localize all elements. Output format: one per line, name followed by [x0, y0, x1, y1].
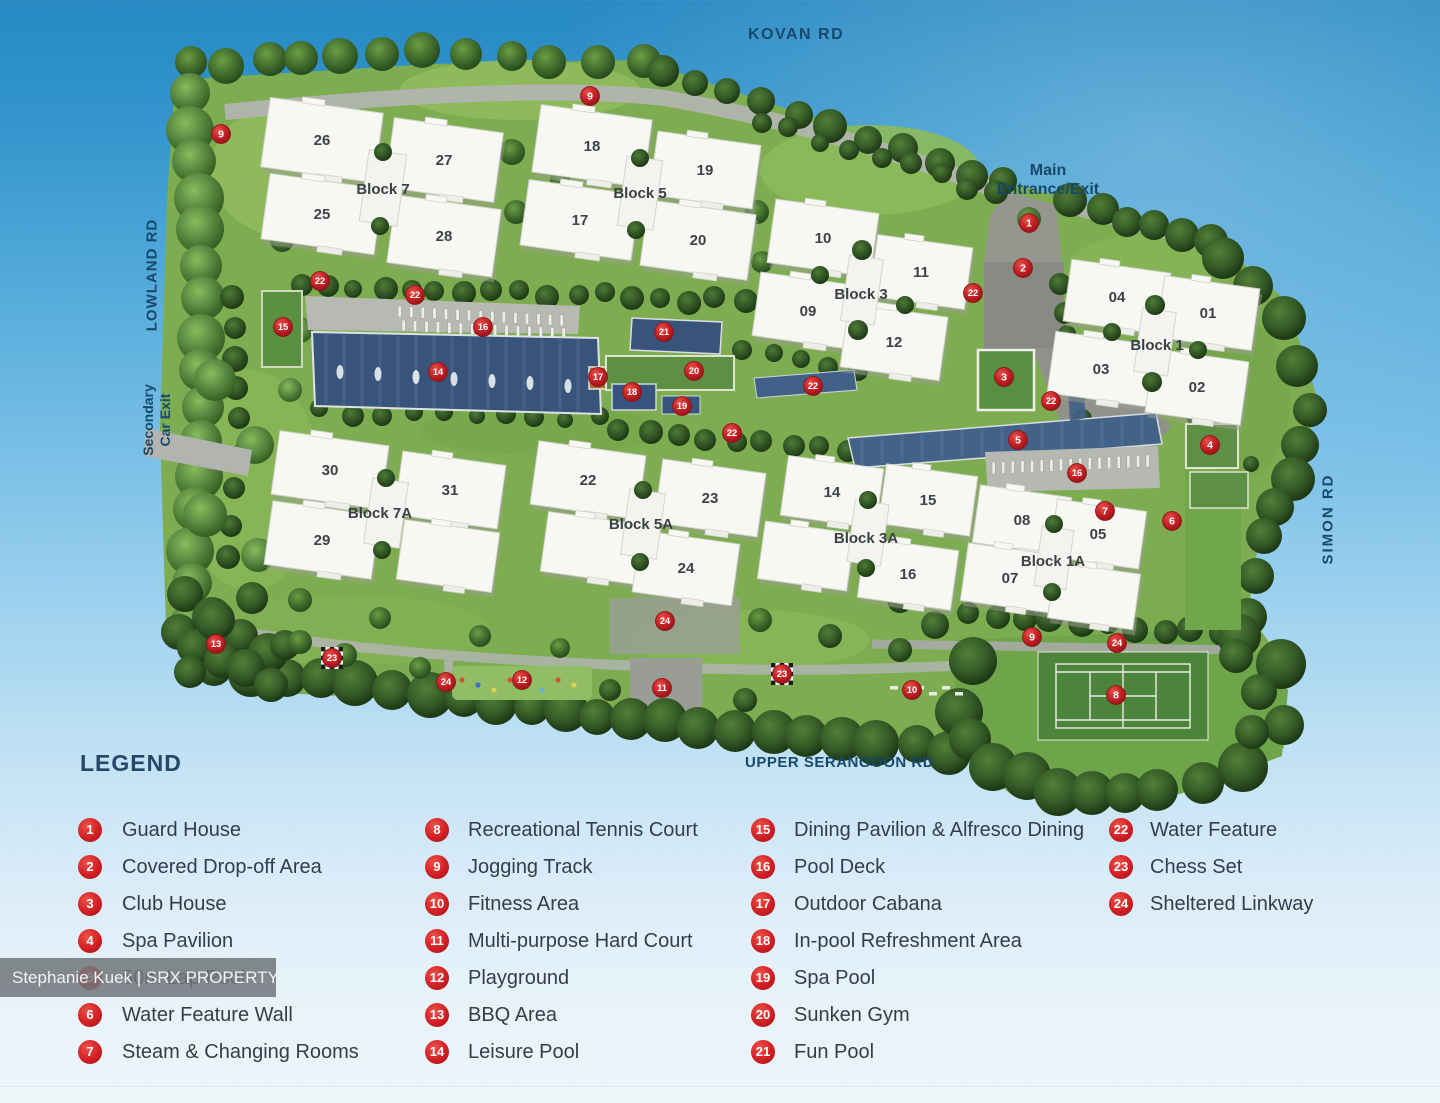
svg-text:20: 20 — [690, 232, 707, 249]
svg-text:14: 14 — [433, 367, 444, 377]
svg-text:29: 29 — [314, 532, 331, 549]
svg-text:16: 16 — [1072, 468, 1082, 478]
svg-text:18: 18 — [584, 138, 601, 155]
svg-text:12: 12 — [886, 334, 903, 351]
svg-text:04: 04 — [1109, 289, 1126, 306]
svg-text:Block 5: Block 5 — [613, 185, 666, 202]
svg-text:15: 15 — [278, 322, 288, 332]
svg-text:27: 27 — [436, 152, 453, 169]
svg-text:23: 23 — [327, 653, 337, 663]
svg-text:7: 7 — [1102, 505, 1108, 517]
svg-text:10: 10 — [907, 685, 917, 695]
svg-text:6: 6 — [1169, 515, 1175, 527]
svg-text:01: 01 — [1200, 305, 1217, 322]
svg-text:22: 22 — [580, 472, 597, 489]
svg-text:19: 19 — [697, 162, 714, 179]
svg-text:22: 22 — [1046, 396, 1056, 406]
svg-text:Block 3A: Block 3A — [834, 530, 898, 547]
svg-text:5: 5 — [1015, 434, 1021, 446]
svg-text:Block 7A: Block 7A — [348, 505, 412, 522]
svg-text:05: 05 — [1090, 526, 1107, 543]
svg-text:07: 07 — [1002, 570, 1019, 587]
svg-text:19: 19 — [677, 401, 687, 411]
svg-text:16: 16 — [478, 322, 488, 332]
svg-text:20: 20 — [689, 366, 699, 376]
svg-text:Block 1: Block 1 — [1130, 337, 1183, 354]
svg-text:28: 28 — [436, 228, 453, 245]
svg-text:24: 24 — [660, 616, 671, 626]
svg-text:Block 3: Block 3 — [834, 286, 887, 303]
svg-text:12: 12 — [517, 675, 527, 685]
svg-text:21: 21 — [659, 327, 669, 337]
svg-text:22: 22 — [968, 288, 978, 298]
svg-text:17: 17 — [593, 372, 603, 382]
svg-text:11: 11 — [913, 264, 929, 281]
svg-text:17: 17 — [572, 212, 589, 229]
svg-text:15: 15 — [920, 492, 937, 509]
svg-text:22: 22 — [727, 428, 737, 438]
svg-text:09: 09 — [800, 303, 817, 320]
svg-text:22: 22 — [410, 290, 420, 300]
svg-text:1: 1 — [1026, 217, 1032, 229]
svg-text:3: 3 — [1001, 371, 1007, 383]
svg-text:16: 16 — [900, 566, 917, 583]
svg-text:02: 02 — [1189, 379, 1206, 396]
svg-text:22: 22 — [808, 381, 818, 391]
svg-text:30: 30 — [322, 462, 339, 479]
svg-text:Block 7: Block 7 — [356, 181, 409, 198]
svg-text:31: 31 — [442, 482, 459, 499]
svg-text:13: 13 — [211, 639, 221, 649]
svg-text:2: 2 — [1020, 262, 1026, 274]
svg-text:14: 14 — [824, 484, 841, 501]
svg-text:4: 4 — [1207, 439, 1213, 451]
svg-text:10: 10 — [815, 230, 832, 247]
svg-text:9: 9 — [587, 90, 593, 102]
svg-text:24: 24 — [1112, 638, 1123, 648]
svg-text:Block 1A: Block 1A — [1021, 553, 1085, 570]
svg-text:8: 8 — [1113, 689, 1119, 701]
svg-text:24: 24 — [441, 677, 452, 687]
svg-text:24: 24 — [678, 560, 695, 577]
svg-text:11: 11 — [657, 683, 667, 693]
svg-text:26: 26 — [314, 132, 331, 149]
svg-text:Block 5A: Block 5A — [609, 516, 673, 533]
svg-text:23: 23 — [702, 490, 719, 507]
svg-text:18: 18 — [627, 387, 637, 397]
svg-text:22: 22 — [315, 276, 325, 286]
svg-text:25: 25 — [314, 206, 331, 223]
svg-text:23: 23 — [777, 669, 787, 679]
svg-text:03: 03 — [1093, 361, 1110, 378]
svg-text:08: 08 — [1014, 512, 1031, 529]
svg-text:9: 9 — [218, 128, 224, 140]
svg-text:9: 9 — [1029, 631, 1035, 643]
